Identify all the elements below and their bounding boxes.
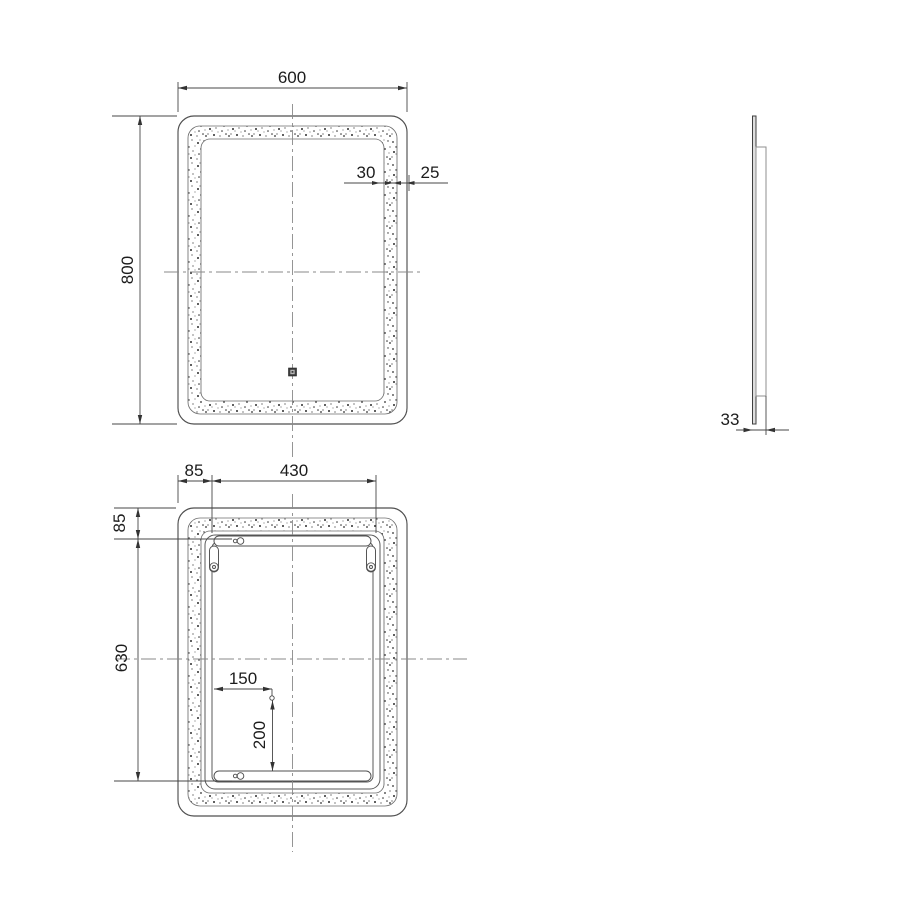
dimension-label: 630 bbox=[112, 644, 131, 672]
left-screw-icon bbox=[210, 563, 218, 571]
arrowhead bbox=[398, 86, 407, 90]
arrowhead bbox=[203, 479, 212, 483]
arrowhead bbox=[766, 428, 775, 432]
arrowhead bbox=[270, 701, 274, 710]
arrowhead bbox=[367, 479, 376, 483]
arrowhead bbox=[138, 415, 142, 424]
dimension-label: 30 bbox=[357, 163, 376, 182]
technical-drawing-sheet: 600 800 30 25 bbox=[0, 0, 900, 900]
dimension-label: 600 bbox=[278, 68, 306, 87]
dimension-cable-position: 150 200 bbox=[214, 669, 275, 771]
dimension-label: 25 bbox=[421, 163, 440, 182]
dimension-label: 85 bbox=[185, 461, 204, 480]
back-view: 85 430 85 630 150 200 bbox=[110, 461, 467, 852]
cable-point bbox=[270, 696, 274, 700]
arrowhead bbox=[136, 530, 140, 539]
arrowhead bbox=[136, 508, 140, 517]
mirror-dimension-drawing: 600 800 30 25 bbox=[0, 0, 900, 900]
side-view: 33 bbox=[721, 116, 789, 435]
arrowhead bbox=[178, 86, 187, 90]
backing-box-profile bbox=[756, 147, 766, 396]
arrowhead bbox=[136, 772, 140, 781]
dimension-label: 430 bbox=[280, 461, 308, 480]
dimension-label: 200 bbox=[250, 721, 269, 749]
right-screw-icon bbox=[367, 563, 375, 571]
front-view: 600 800 30 25 bbox=[112, 68, 448, 457]
touch-sensor-icon bbox=[289, 368, 297, 376]
arrowhead bbox=[407, 181, 415, 185]
arrowhead bbox=[744, 428, 753, 432]
dimension-label: 150 bbox=[229, 669, 257, 688]
dimension-label: 85 bbox=[110, 514, 129, 533]
arrowhead bbox=[214, 687, 223, 691]
dimension-label: 33 bbox=[721, 410, 740, 429]
arrowhead bbox=[212, 479, 221, 483]
arrowhead bbox=[136, 539, 140, 548]
dimension-label: 800 bbox=[118, 256, 137, 284]
arrowhead bbox=[138, 116, 142, 125]
arrowhead bbox=[263, 687, 272, 691]
glass-profile bbox=[753, 116, 757, 424]
arrowhead bbox=[270, 762, 274, 771]
dimension-height: 800 bbox=[112, 116, 177, 424]
